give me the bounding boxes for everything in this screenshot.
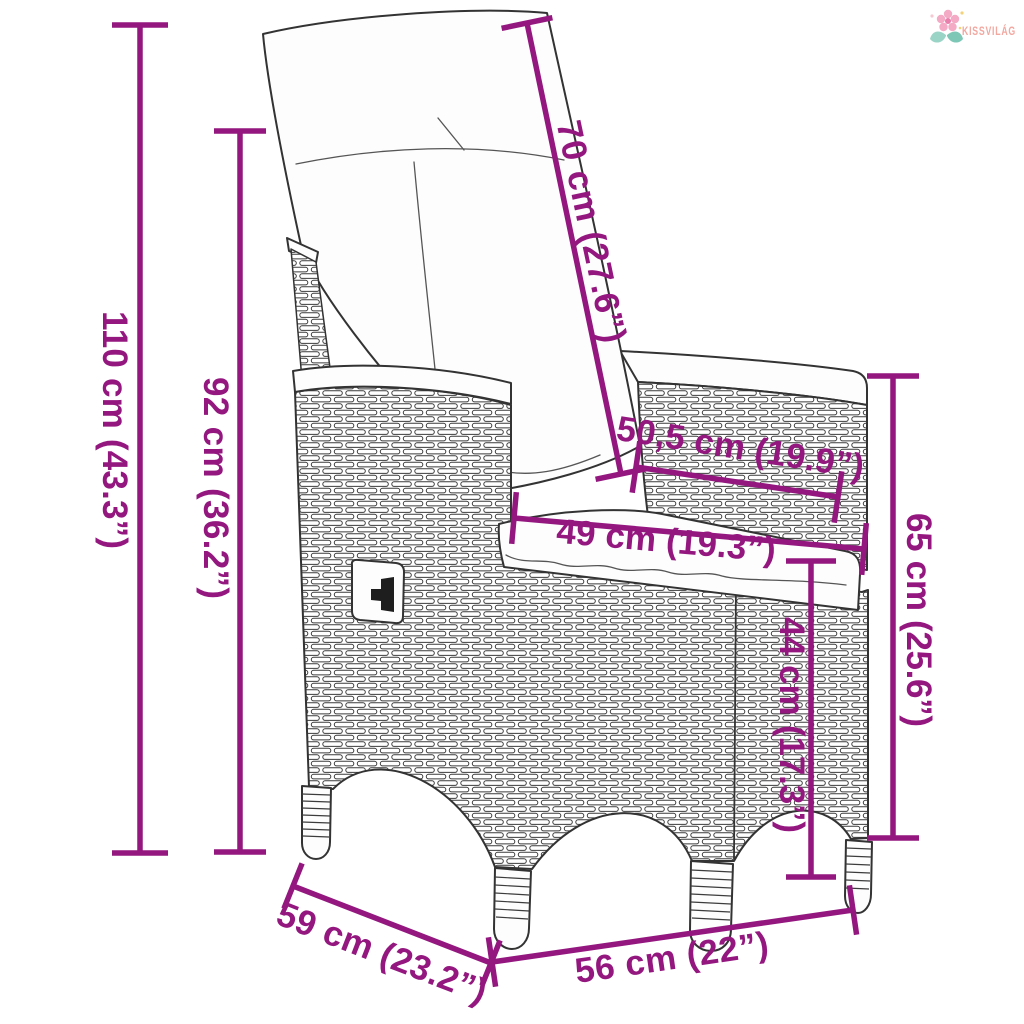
label-armrest-height: 65 cm (25.6”) [899,513,938,727]
product-dimension-diagram: 110 cm (43.3”) 92 cm (36.2”) 70 cm (27.6… [0,0,1024,1024]
diagram-canvas: 110 cm (43.3”) 92 cm (36.2”) 70 cm (27.6… [0,0,1024,1024]
label-seat-height: 44 cm (17.3”) [772,617,811,833]
leg-back-left [302,786,331,859]
label-backrest-height: 92 cm (36.2”) [196,377,235,599]
brand-name: KISSVILÁG [962,25,1016,38]
leg-back-right [845,840,872,913]
recline-mechanism [352,560,404,623]
label-total-height: 110 cm (43.3”) [95,311,134,549]
leg-front-left [494,868,531,949]
